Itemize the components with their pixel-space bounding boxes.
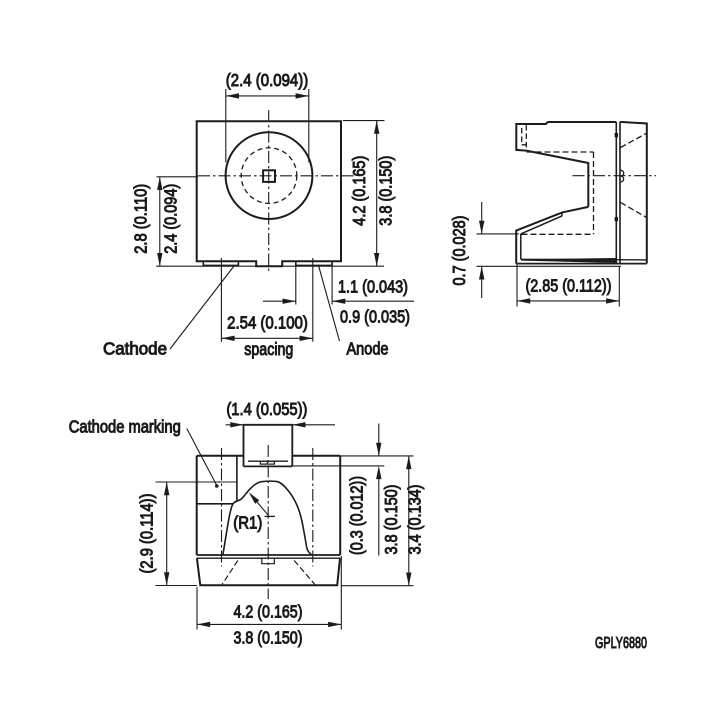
svg-text:spacing: spacing	[244, 339, 293, 359]
svg-text:(0.3 (0.012)): (0.3 (0.012))	[347, 476, 367, 555]
svg-text:0.7 (0.028): 0.7 (0.028)	[449, 216, 469, 286]
svg-text:(2.9 (0.114)): (2.9 (0.114))	[136, 494, 156, 574]
svg-text:(2.85 (0.112)): (2.85 (0.112))	[526, 276, 612, 296]
svg-text:3.8 (0.150): 3.8 (0.150)	[381, 485, 401, 555]
svg-text:4.2 (0.165): 4.2 (0.165)	[234, 601, 303, 621]
svg-text:3.4 (0.134): 3.4 (0.134)	[404, 485, 424, 555]
svg-text:2.54 (0.100): 2.54 (0.100)	[227, 313, 308, 333]
svg-text:Cathode: Cathode	[103, 339, 167, 359]
svg-text:(2.4 (0.094)): (2.4 (0.094))	[226, 70, 308, 90]
svg-text:2.8 (0.110): 2.8 (0.110)	[130, 184, 150, 254]
svg-text:(R1): (R1)	[233, 513, 262, 533]
svg-text:2.4 (0.094): 2.4 (0.094)	[161, 184, 181, 254]
svg-text:3.8 (0.150): 3.8 (0.150)	[375, 156, 395, 226]
svg-text:(1.4 (0.055)): (1.4 (0.055))	[226, 399, 307, 419]
svg-text:Cathode marking: Cathode marking	[69, 416, 181, 436]
svg-text:Anode: Anode	[347, 339, 389, 359]
svg-text:0.9 (0.035): 0.9 (0.035)	[340, 307, 410, 327]
svg-text:GPLY6880: GPLY6880	[595, 635, 647, 652]
svg-text:4.2 (0.165): 4.2 (0.165)	[349, 156, 369, 226]
svg-text:3.8 (0.150): 3.8 (0.150)	[234, 628, 303, 648]
svg-text:1.1 (0.043): 1.1 (0.043)	[338, 277, 408, 297]
